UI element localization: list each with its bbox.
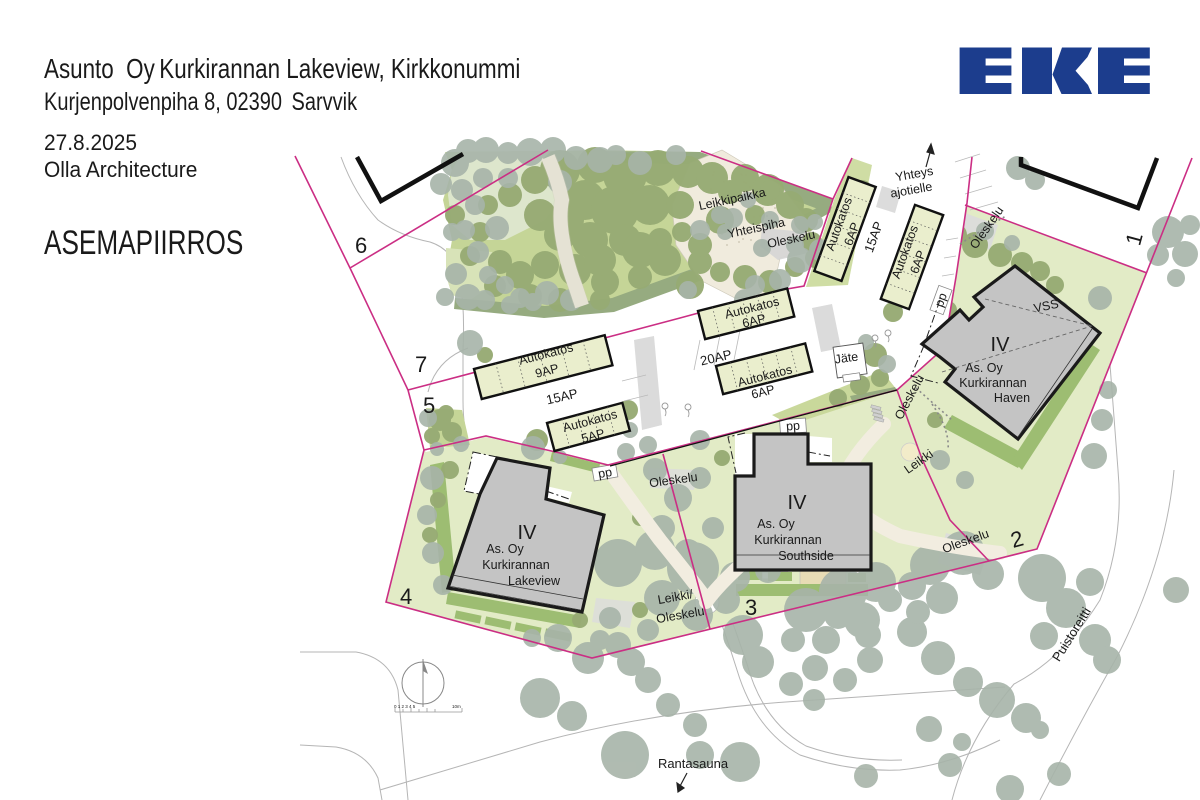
svg-text:Haven: Haven <box>994 391 1030 405</box>
svg-text:10m: 10m <box>452 704 461 709</box>
svg-text:Lakeview: Lakeview <box>508 574 561 588</box>
svg-text:15AP: 15AP <box>545 386 579 408</box>
svg-text:As. Oy: As. Oy <box>965 361 1003 375</box>
svg-text:Southside: Southside <box>778 549 834 563</box>
svg-text:As. Oy: As. Oy <box>486 542 524 556</box>
svg-text:5: 5 <box>423 393 435 418</box>
svg-text:15AP: 15AP <box>861 219 886 254</box>
svg-text:3: 3 <box>745 595 757 620</box>
svg-text:0 1 2 3 4 5: 0 1 2 3 4 5 <box>394 704 416 709</box>
svg-text:IV: IV <box>991 334 1011 356</box>
svg-text:As. Oy: As. Oy <box>757 517 795 531</box>
svg-text:4: 4 <box>400 584 412 609</box>
svg-text:Rantasauna: Rantasauna <box>658 756 729 771</box>
svg-text:Kurkirannan: Kurkirannan <box>754 533 821 547</box>
svg-text:Kurkirannan: Kurkirannan <box>959 376 1026 390</box>
svg-text:pp: pp <box>597 465 613 481</box>
svg-text:Kurkirannan: Kurkirannan <box>482 558 549 572</box>
svg-text:7: 7 <box>415 352 427 377</box>
svg-text:IV: IV <box>788 492 808 514</box>
svg-text:6: 6 <box>355 233 367 258</box>
svg-text:IV: IV <box>518 522 538 544</box>
svg-text:1: 1 <box>1120 230 1147 248</box>
svg-text:pp: pp <box>786 419 801 434</box>
